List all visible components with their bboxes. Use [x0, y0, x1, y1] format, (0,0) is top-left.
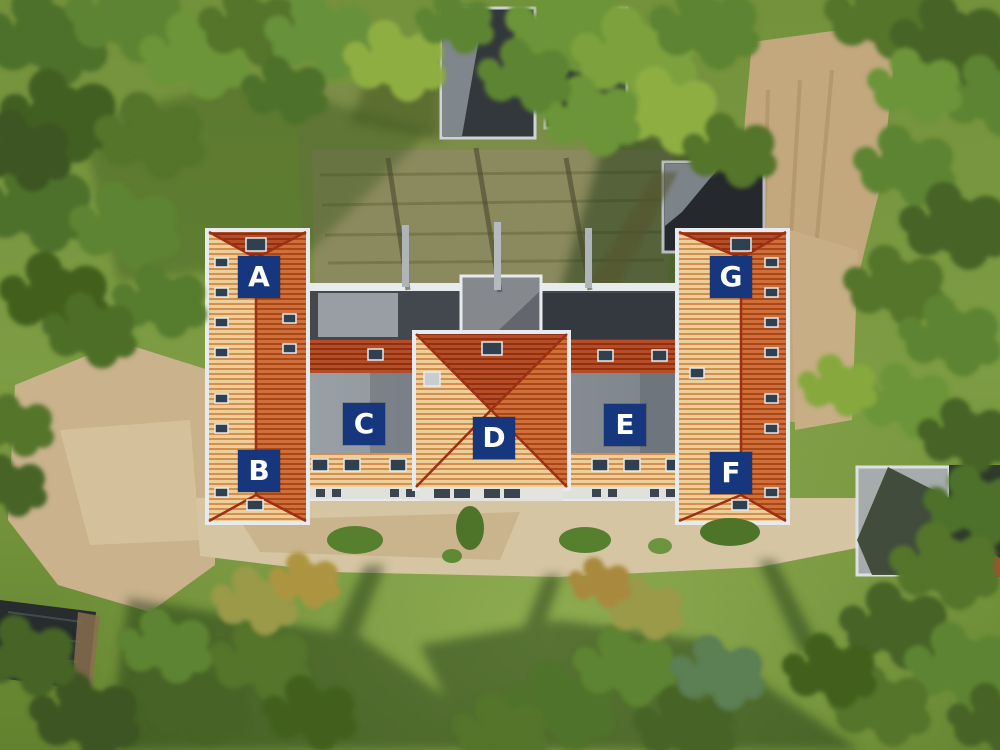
unit-marker-g[interactable]: G — [710, 256, 752, 298]
unit-marker-b-label: B — [248, 457, 269, 485]
unit-marker-d[interactable]: D — [473, 417, 515, 459]
unit-marker-e[interactable]: E — [604, 404, 646, 446]
unit-marker-f-label: F — [721, 459, 740, 487]
pavilion — [412, 330, 571, 501]
unit-marker-a-label: A — [248, 263, 270, 291]
aerial-scene — [0, 0, 1000, 750]
unit-marker-d-label: D — [482, 424, 505, 452]
unit-marker-c[interactable]: C — [343, 403, 385, 445]
unit-marker-b[interactable]: B — [238, 450, 280, 492]
unit-marker-g-label: G — [720, 263, 743, 291]
unit-marker-e-label: E — [615, 411, 634, 439]
unit-marker-a[interactable]: A — [238, 256, 280, 298]
unit-marker-c-label: C — [354, 410, 375, 438]
unit-marker-f[interactable]: F — [710, 452, 752, 494]
aerial-photo: A B C D E F G — [0, 0, 1000, 750]
